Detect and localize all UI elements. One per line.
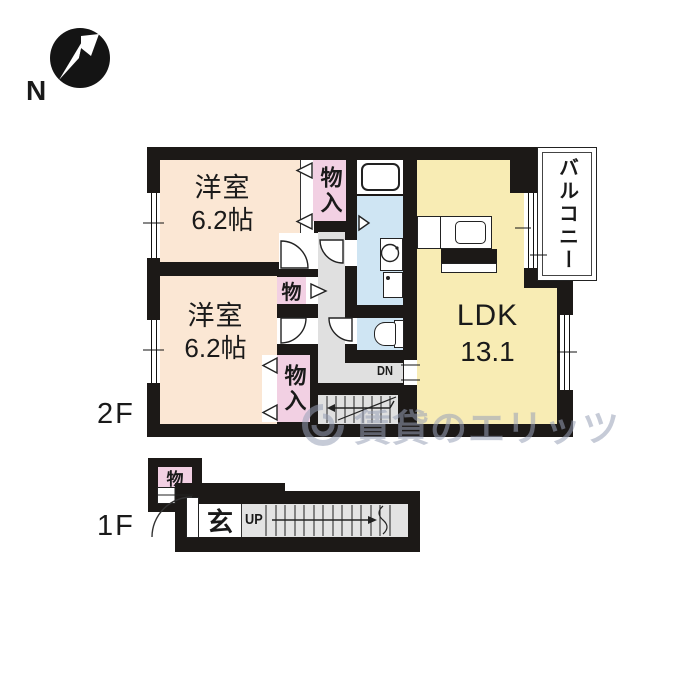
- bedroom1-label: 洋室 6.2帖: [160, 172, 285, 237]
- bedroom2-label: 洋室 6.2帖: [153, 300, 278, 365]
- closet1-label: 物入: [313, 160, 346, 221]
- ldk-entry-opening: [404, 360, 417, 385]
- entrance-label: 玄: [199, 504, 241, 537]
- bedroom2-size: 6.2帖: [153, 333, 278, 365]
- closet-small-sliding-door: [306, 277, 318, 304]
- window: [560, 315, 573, 390]
- window: [147, 193, 160, 258]
- washroom-door-opening: [345, 240, 357, 266]
- closet2-sliding-door: [262, 355, 278, 422]
- watermark: 賃貸のエリッツ: [300, 398, 620, 452]
- toilet-bowl: [374, 322, 396, 346]
- balcony-label: バルコニー: [553, 157, 582, 272]
- balcony-window: [524, 193, 537, 268]
- bedroom2-door-opening: [277, 318, 318, 344]
- watermark-logo-icon: [300, 402, 346, 448]
- bedroom2-name: 洋室: [153, 300, 278, 333]
- floorplan-page: { "compass": { "direction_label": "N" },…: [0, 0, 700, 700]
- kitchen-sink: [455, 221, 486, 244]
- ldk-label: LDK 13.1: [430, 298, 545, 369]
- bedroom1-sliding-door: [300, 160, 314, 233]
- bedroom1-door-opening: [279, 233, 318, 269]
- watermark-text: 賃貸のエリッツ: [354, 398, 620, 452]
- floor1-label: 1F: [97, 510, 135, 543]
- closet1-area: 物入: [313, 160, 346, 221]
- ldk-name: LDK: [430, 298, 545, 335]
- hallway-floor: [318, 232, 345, 383]
- kitchen-wall: [441, 249, 497, 263]
- entrance-door-leaf: [186, 497, 199, 538]
- bedroom1-size: 6.2帖: [160, 205, 285, 237]
- closet-small-label: 物: [277, 277, 306, 304]
- kitchen-base: [441, 263, 497, 273]
- vanity-sink: [380, 238, 403, 271]
- compass-north-label: N: [26, 74, 46, 108]
- bathtub: [361, 163, 400, 191]
- floor2-label: 2F: [97, 398, 135, 431]
- closet-small-area: 物: [277, 277, 306, 304]
- ldk-size: 13.1: [430, 335, 545, 369]
- toilet-door-opening: [345, 318, 357, 344]
- ldk-floor: [417, 160, 510, 424]
- entrance-floor: 玄: [199, 504, 241, 537]
- floor1-stair-corridor: [241, 504, 408, 537]
- compass-icon: [35, 18, 125, 113]
- stairs-up-label: UP: [245, 511, 266, 529]
- bedroom1-name: 洋室: [160, 172, 285, 205]
- washer-pan: [383, 272, 403, 298]
- stairs-down-label: DN: [377, 363, 396, 379]
- balcony-area: バルコニー: [537, 147, 597, 281]
